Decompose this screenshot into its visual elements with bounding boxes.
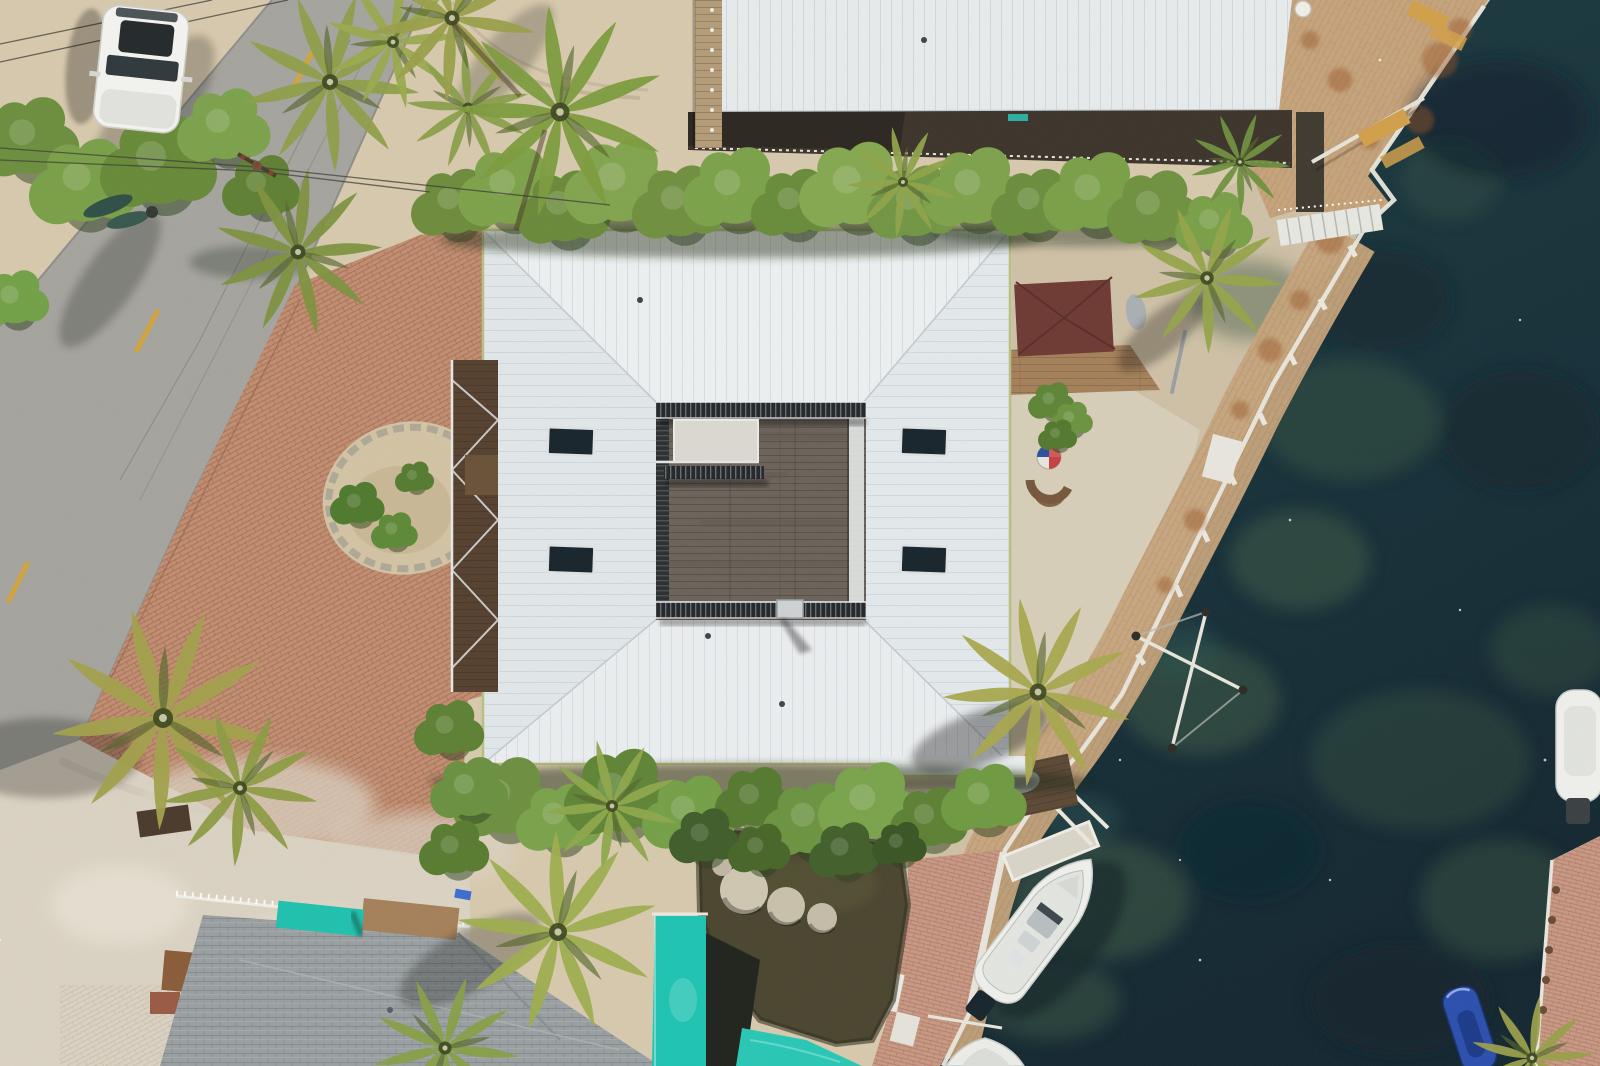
photo-grain	[0, 0, 1600, 1066]
aerial-photo-canvas	[0, 0, 1600, 1066]
aerial-photo	[0, 0, 1600, 1066]
